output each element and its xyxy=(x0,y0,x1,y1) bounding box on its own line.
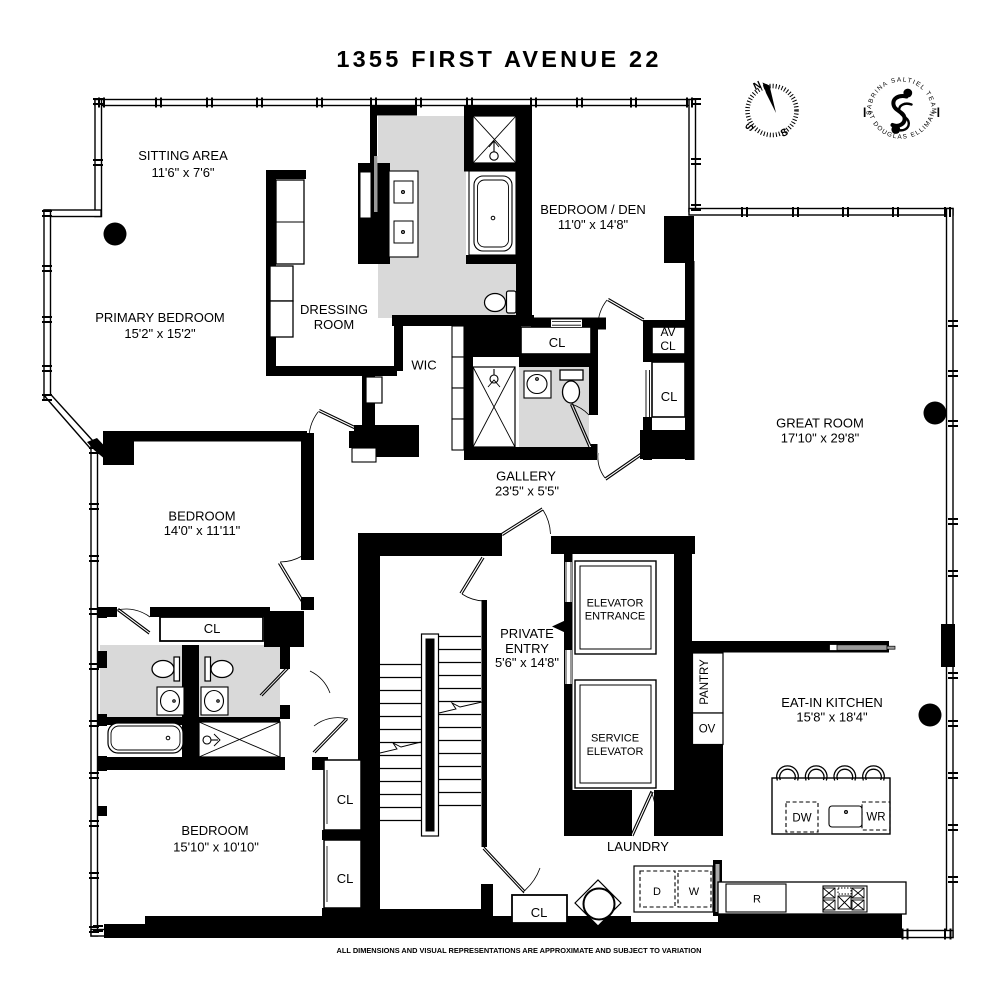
svg-text:SITTING AREA: SITTING AREA xyxy=(138,148,228,163)
svg-text:DRESSING: DRESSING xyxy=(300,302,368,317)
svg-text:ELEVATOR: ELEVATOR xyxy=(587,746,644,758)
svg-text:PRIVATE: PRIVATE xyxy=(500,626,554,641)
svg-text:PRIMARY BEDROOM: PRIMARY BEDROOM xyxy=(95,310,225,325)
svg-text:CL: CL xyxy=(337,871,354,886)
svg-text:ALL DIMENSIONS AND VISUAL REPR: ALL DIMENSIONS AND VISUAL REPRESENTATION… xyxy=(337,946,702,955)
svg-text:15'2" x 15'2": 15'2" x 15'2" xyxy=(124,326,196,341)
svg-text:ELEVATOR: ELEVATOR xyxy=(587,598,644,610)
svg-text:PANTRY: PANTRY xyxy=(699,659,711,705)
svg-text:LAUNDRY: LAUNDRY xyxy=(607,839,669,854)
svg-text:WIC: WIC xyxy=(411,358,436,373)
svg-text:5'6" x 14'8": 5'6" x 14'8" xyxy=(495,655,559,670)
svg-text:ROOM: ROOM xyxy=(314,317,354,332)
svg-text:15'8" x 18'4": 15'8" x 18'4" xyxy=(796,710,868,725)
svg-text:CL: CL xyxy=(204,621,221,636)
svg-text:GREAT ROOM: GREAT ROOM xyxy=(776,416,864,431)
svg-text:SERVICE: SERVICE xyxy=(591,733,639,745)
svg-text:11'6" x 7'6": 11'6" x 7'6" xyxy=(151,165,214,180)
svg-text:15'10" x 10'10": 15'10" x 10'10" xyxy=(173,840,259,855)
svg-text:AV: AV xyxy=(660,325,675,339)
svg-text:D: D xyxy=(653,886,661,898)
svg-text:EAT-IN KITCHEN: EAT-IN KITCHEN xyxy=(781,695,883,710)
svg-text:BEDROOM: BEDROOM xyxy=(181,823,248,838)
svg-text:11'0" x 14'8": 11'0" x 14'8" xyxy=(558,217,629,232)
svg-text:CL: CL xyxy=(337,792,354,807)
svg-text:WR: WR xyxy=(866,812,885,824)
svg-text:CL: CL xyxy=(531,905,548,920)
svg-text:14'0" x 11'11": 14'0" x 11'11" xyxy=(164,523,241,538)
svg-text:OV: OV xyxy=(699,724,716,736)
svg-text:BEDROOM: BEDROOM xyxy=(168,509,235,524)
svg-text:DW: DW xyxy=(792,813,811,825)
svg-text:CL: CL xyxy=(660,339,676,353)
svg-text:23'5" x 5'5": 23'5" x 5'5" xyxy=(495,484,559,499)
svg-text:W: W xyxy=(689,886,700,898)
svg-text:ENTRANCE: ENTRANCE xyxy=(585,611,646,623)
svg-text:R: R xyxy=(753,894,761,906)
svg-text:CL: CL xyxy=(549,335,566,350)
svg-text:1355 FIRST AVENUE 22: 1355 FIRST AVENUE 22 xyxy=(336,46,661,72)
svg-text:GALLERY: GALLERY xyxy=(496,469,556,484)
svg-text:BEDROOM / DEN: BEDROOM / DEN xyxy=(540,202,645,217)
svg-text:ENTRY: ENTRY xyxy=(505,641,549,656)
svg-text:17'10" x 29'8": 17'10" x 29'8" xyxy=(781,431,860,446)
svg-text:CL: CL xyxy=(661,389,678,404)
